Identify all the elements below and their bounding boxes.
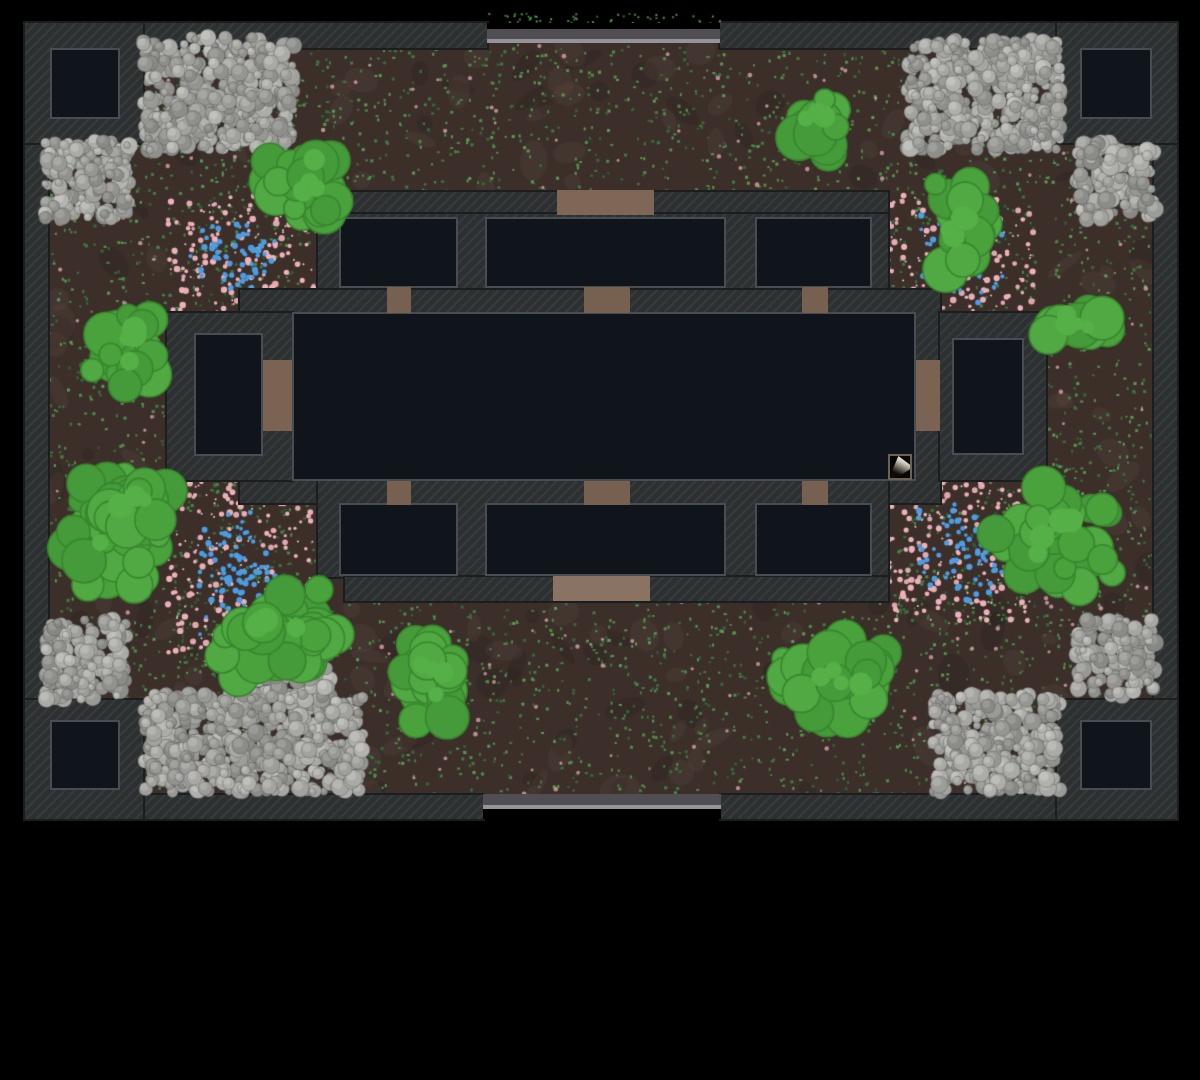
gate-south-rail [483, 805, 721, 809]
game-map-stage [0, 0, 1200, 1080]
mountain-icon [890, 456, 910, 478]
gate-south-bar[interactable] [483, 794, 721, 805]
gate-south-void [483, 809, 721, 819]
vegetation-canvas [0, 0, 1200, 1080]
item-marker[interactable] [888, 454, 912, 480]
gate-north-bar[interactable] [487, 29, 720, 39]
gate-north-rail [487, 39, 720, 43]
